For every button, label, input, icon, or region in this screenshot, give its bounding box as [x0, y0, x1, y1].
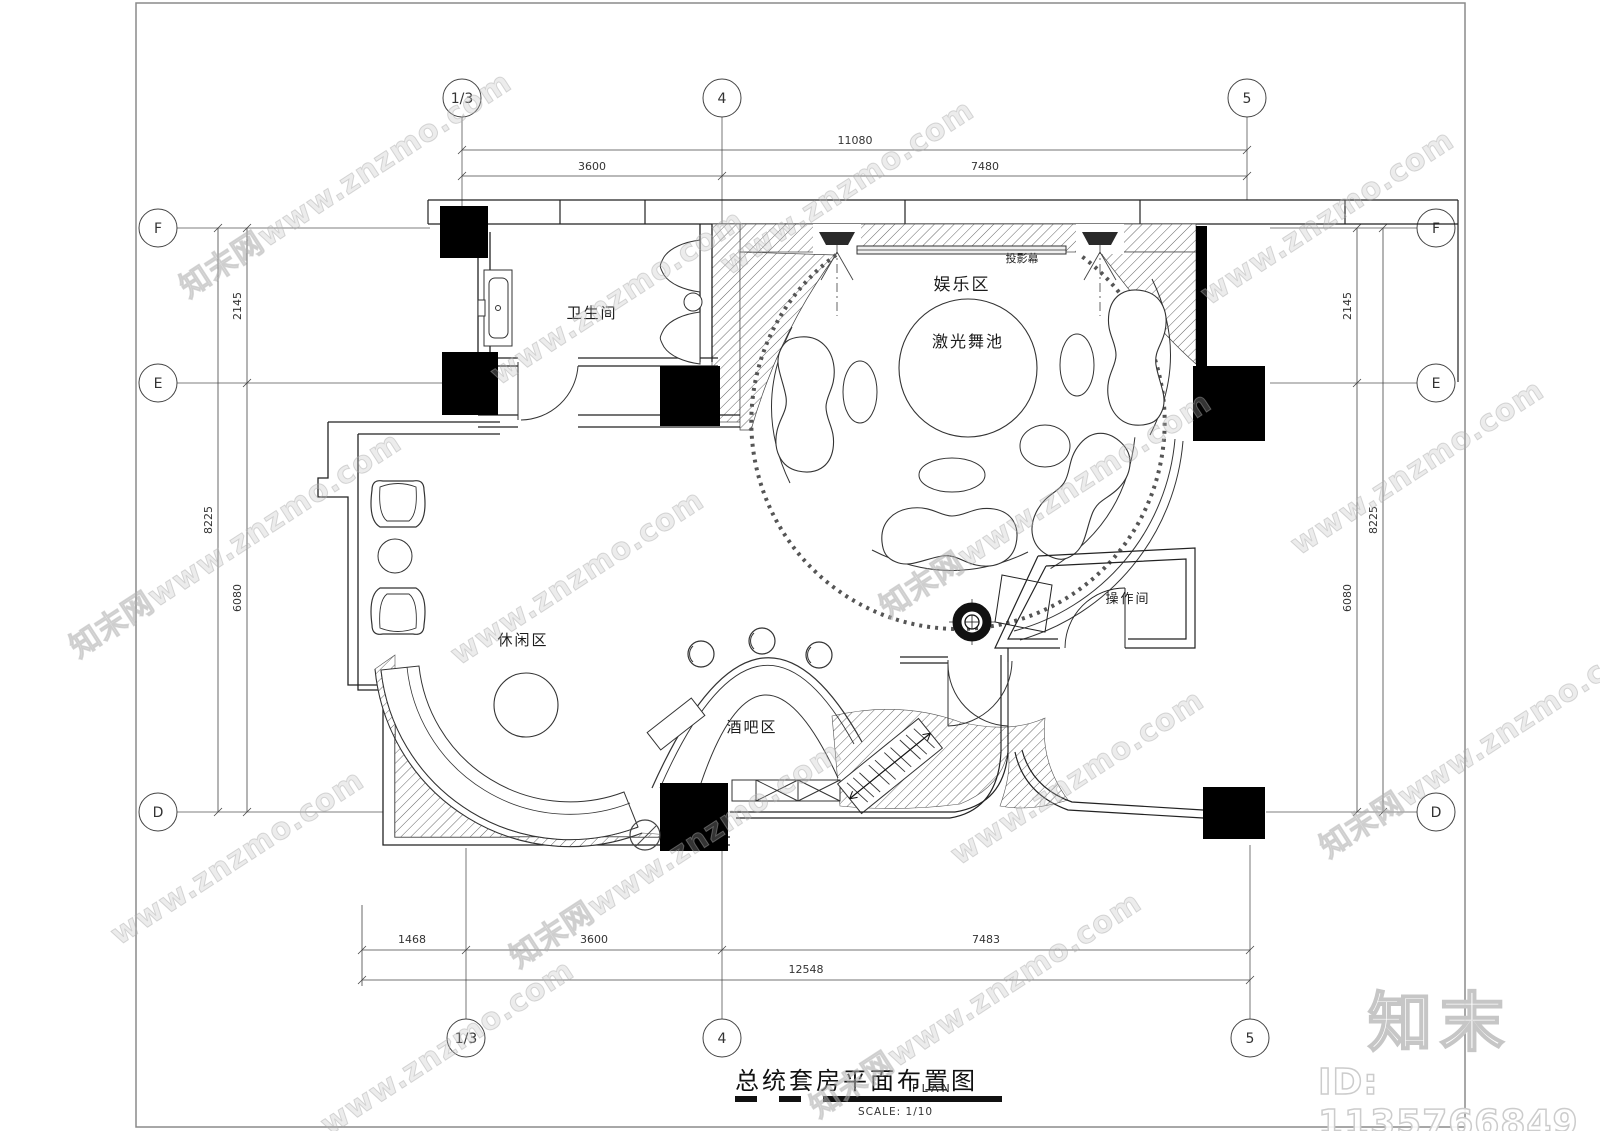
- grid-label: 1/3: [455, 1031, 478, 1047]
- grid-bubble-col-5-top: 5: [1228, 79, 1266, 117]
- sink-drain: [496, 306, 501, 311]
- grid-label: 5: [1243, 91, 1252, 107]
- dim-right-seg2: 6080: [1341, 584, 1354, 612]
- grid-label: F: [154, 221, 162, 237]
- room-label-bathroom: 卫生间: [566, 304, 617, 322]
- dim-bottom-seg2: 3600: [580, 933, 608, 946]
- room-label-bar: 酒吧区: [726, 718, 777, 736]
- grid-bubble-col-1-3-bottom: 1/3: [447, 1019, 485, 1057]
- grid-bubble-row-E-right: E: [1417, 364, 1455, 402]
- side-table-icon: [1020, 425, 1070, 467]
- grid-bubble-row-D-right: D: [1417, 793, 1455, 831]
- ceiling-light-icon: [949, 599, 995, 645]
- bar-stool-icon: [806, 642, 832, 668]
- entertainment-area: [751, 255, 1183, 640]
- dim-bottom-total: 12548: [789, 963, 824, 976]
- grid-bubble-col-1-3-top: 1/3: [443, 79, 481, 117]
- grid-label: 1/3: [451, 91, 474, 107]
- laser-dance-floor: [899, 299, 1037, 437]
- console-table: [995, 575, 1052, 632]
- side-table-icon: [843, 361, 877, 423]
- title-block: 总统套房平面布置图 PLAN SCALE: 1/10: [735, 1067, 1002, 1118]
- sofa-icon: [882, 508, 1017, 566]
- dim-left-seg2: 6080: [231, 584, 244, 612]
- grid-bubble-row-E-left: E: [139, 364, 177, 402]
- dim-bottom-seg1: 1468: [398, 933, 426, 946]
- round-basin-icon: [684, 293, 702, 311]
- grid-bubble-col-4-bottom: 4: [703, 1019, 741, 1057]
- dim-bottom-seg3: 7483: [972, 933, 1000, 946]
- bathroom-fixtures: [478, 240, 702, 364]
- coffee-table-icon: [378, 539, 412, 573]
- grid-bubble-row-F-left: F: [139, 209, 177, 247]
- sofa-icon: [1108, 290, 1166, 425]
- dim-top-total: 11080: [838, 134, 873, 147]
- grid-label: E: [1432, 376, 1441, 392]
- grid-label: D: [153, 805, 164, 821]
- room-label-leisure: 休闲区: [497, 631, 548, 649]
- grid-bubble-row-F-right: F: [1417, 209, 1455, 247]
- bar-end-cabinet: [647, 698, 705, 750]
- room-label-dance-floor: 激光舞池: [932, 332, 1004, 351]
- scale-label: SCALE: 1/10: [858, 1106, 933, 1118]
- wall-fill: [1196, 226, 1207, 366]
- entrance-double-door: [948, 660, 1012, 726]
- bar-counter-inner: [700, 695, 838, 786]
- side-table-icon: [1060, 334, 1094, 396]
- armchair-icon: [371, 481, 425, 527]
- back-bar-shelf: [732, 780, 840, 801]
- grid-bubble-col-4-top: 4: [703, 79, 741, 117]
- grid-label: 4: [718, 91, 727, 107]
- leisure-furniture: [371, 481, 700, 847]
- bathroom-door: [518, 362, 578, 420]
- floor-plan-drawing: 1/3 4 5 1/3 4 5 F E: [0, 0, 1600, 1131]
- column: [660, 783, 728, 851]
- grid-bubble-col-5-bottom: 5: [1231, 1019, 1269, 1057]
- dim-right-total: 8225: [1367, 506, 1380, 534]
- side-table-icon: [919, 458, 985, 492]
- column: [1203, 787, 1265, 839]
- grid-label: 4: [718, 1031, 727, 1047]
- dim-top-seg1: 3600: [578, 160, 606, 173]
- toilet-icon: [660, 240, 700, 292]
- grid-label: 5: [1246, 1031, 1255, 1047]
- operation-room: [995, 548, 1195, 648]
- title-underline-gap: [757, 1095, 779, 1103]
- bar-stool-icon: [749, 628, 775, 654]
- watermark-id: ID: 1135766849: [1318, 1062, 1600, 1131]
- dim-right-seg1: 2145: [1341, 292, 1354, 320]
- faucet-icon: [478, 300, 485, 316]
- dim-top-seg2: 7480: [971, 160, 999, 173]
- grid-label: E: [154, 376, 163, 392]
- room-label-projection-screen: 投影幕: [1006, 251, 1039, 265]
- column: [1193, 366, 1265, 441]
- column: [440, 206, 488, 258]
- grid-label: D: [1431, 805, 1442, 821]
- column: [442, 352, 498, 415]
- cad-floor-plan-page: 1/3 4 5 1/3 4 5 F E: [0, 0, 1600, 1131]
- title-underline-gap: [801, 1095, 823, 1103]
- page-border: [136, 3, 1465, 1127]
- toilet-icon: [660, 312, 700, 364]
- room-label-entertainment: 娱乐区: [934, 275, 991, 295]
- dim-left-seg1: 2145: [231, 292, 244, 320]
- round-table-icon: [494, 673, 558, 737]
- grid-bubble-row-D-left: D: [139, 793, 177, 831]
- bar-stool-icon: [688, 641, 714, 667]
- znzmo-logo: 知末: [1368, 972, 1512, 1064]
- dim-left-total: 8225: [202, 506, 215, 534]
- plan-label: PLAN: [912, 1082, 953, 1095]
- armchair-icon: [371, 588, 425, 634]
- column: [660, 366, 720, 426]
- sofa-icon: [776, 337, 834, 472]
- room-label-operation: 操作间: [1105, 591, 1150, 607]
